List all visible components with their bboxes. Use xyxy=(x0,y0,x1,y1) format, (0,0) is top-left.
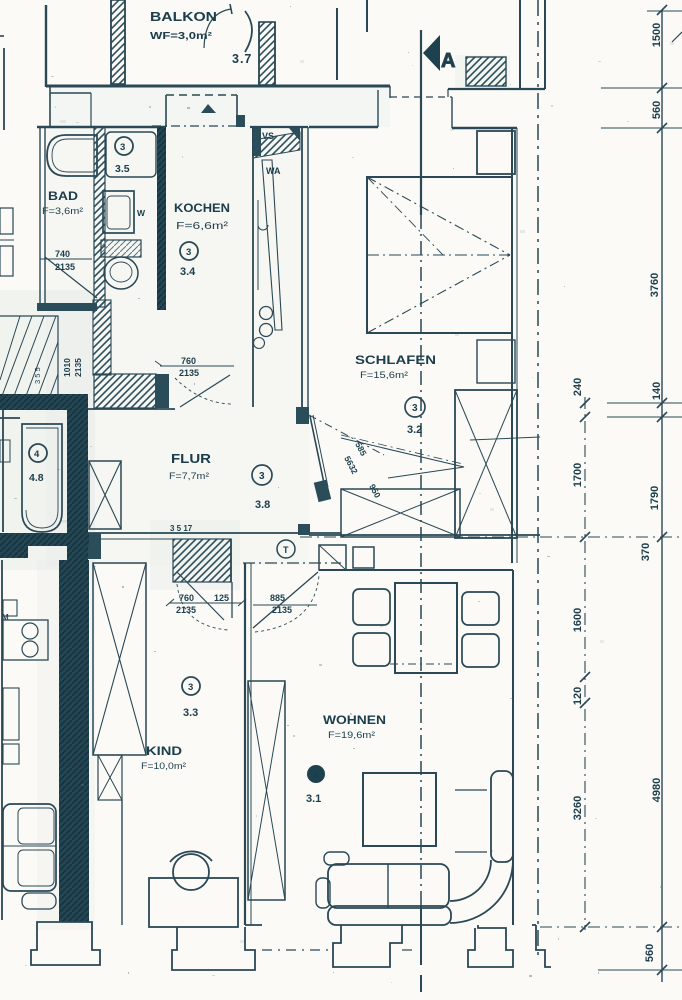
svg-text:3 5 17: 3 5 17 xyxy=(170,524,193,533)
svg-text:3760: 3760 xyxy=(649,273,661,297)
svg-text:3.7: 3.7 xyxy=(232,52,252,66)
svg-text:4.8: 4.8 xyxy=(29,472,44,484)
svg-text:3: 3 xyxy=(188,682,193,693)
svg-text:2135: 2135 xyxy=(179,368,199,378)
svg-text:KOCHEN: KOCHEN xyxy=(174,203,230,215)
svg-text:3: 3 xyxy=(259,471,265,482)
svg-text:W: W xyxy=(137,208,146,218)
svg-text:FLUR: FLUR xyxy=(171,452,211,466)
svg-text:KIND: KIND xyxy=(146,746,182,758)
svg-text:F=19,6m²: F=19,6m² xyxy=(328,730,375,741)
svg-text:VS: VS xyxy=(262,131,274,141)
svg-text:3.2: 3.2 xyxy=(407,424,422,436)
svg-text:140: 140 xyxy=(651,382,663,400)
svg-text:3: 3 xyxy=(120,142,125,153)
svg-text:3 5 5: 3 5 5 xyxy=(33,367,42,384)
svg-text:BAD: BAD xyxy=(48,191,78,203)
svg-text:240: 240 xyxy=(572,378,584,396)
svg-text:WOHNEN: WOHNEN xyxy=(323,713,386,727)
svg-text:3.5: 3.5 xyxy=(115,163,130,175)
svg-text:1790: 1790 xyxy=(649,486,661,510)
svg-text:760: 760 xyxy=(181,356,196,366)
svg-text:370: 370 xyxy=(640,543,652,561)
svg-text:A: A xyxy=(441,50,455,72)
svg-text:2135: 2135 xyxy=(73,358,83,377)
svg-text:3260: 3260 xyxy=(572,796,584,820)
svg-text:1600: 1600 xyxy=(572,608,584,632)
svg-text:F=10,0m²: F=10,0m² xyxy=(141,761,186,772)
svg-text:F=7,7m²: F=7,7m² xyxy=(169,471,209,482)
svg-text:1500: 1500 xyxy=(651,23,663,47)
svg-text:1010: 1010 xyxy=(62,358,72,377)
svg-text:4: 4 xyxy=(34,449,40,460)
svg-text:SCHLAFEN: SCHLAFEN xyxy=(355,353,436,367)
svg-text:F=3,6m²: F=3,6m² xyxy=(42,206,83,217)
svg-text:F=6,6m²: F=6,6m² xyxy=(176,221,229,232)
svg-text:BALKON: BALKON xyxy=(150,9,217,24)
svg-text:2135: 2135 xyxy=(55,262,75,272)
svg-text:740: 740 xyxy=(55,249,70,259)
svg-text:3: 3 xyxy=(186,247,191,258)
svg-text:885: 885 xyxy=(270,593,285,603)
svg-text:T: T xyxy=(283,545,289,555)
svg-text:3: 3 xyxy=(412,403,418,414)
svg-text:120: 120 xyxy=(572,687,584,705)
svg-text:125: 125 xyxy=(214,593,229,603)
svg-text:3.4: 3.4 xyxy=(180,266,196,278)
svg-text:3.8: 3.8 xyxy=(255,499,270,511)
svg-text:WF=3,0m²: WF=3,0m² xyxy=(150,30,213,42)
svg-text:560: 560 xyxy=(644,944,656,962)
svg-text:2135: 2135 xyxy=(176,605,196,615)
svg-text:F=15,6m²: F=15,6m² xyxy=(360,370,408,381)
svg-text:1700: 1700 xyxy=(572,463,584,487)
svg-text:4980: 4980 xyxy=(651,778,663,802)
svg-text:560: 560 xyxy=(651,101,663,119)
svg-text:2135: 2135 xyxy=(272,605,292,615)
svg-text:3.1: 3.1 xyxy=(306,793,321,805)
svg-text:3: 3 xyxy=(313,770,318,781)
svg-text:760: 760 xyxy=(179,593,194,603)
svg-text:WA: WA xyxy=(266,166,281,176)
svg-text:3.3: 3.3 xyxy=(183,707,198,719)
